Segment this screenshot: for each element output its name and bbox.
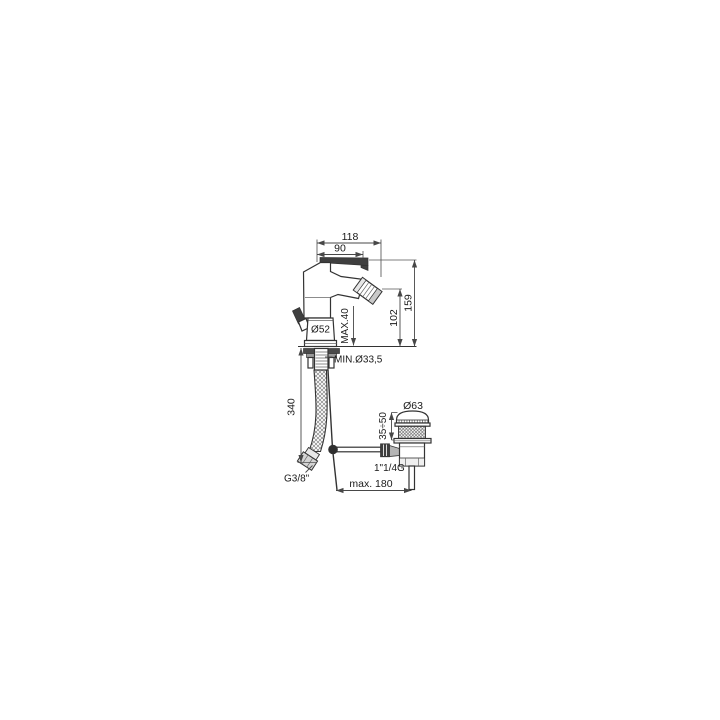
dim-1-14g-label: 1"1/4G bbox=[374, 463, 405, 474]
dim-max180-label: max. 180 bbox=[349, 478, 392, 490]
dim-handle-90: 90 bbox=[317, 243, 363, 259]
pop-up-rod bbox=[328, 370, 337, 490]
dim-118-label: 118 bbox=[342, 231, 359, 243]
faucet bbox=[293, 258, 382, 347]
dim-max-deck-40: MAX.40 bbox=[340, 306, 354, 346]
drain-threaded-section bbox=[399, 426, 426, 438]
handle-lip bbox=[361, 266, 368, 271]
hose-braid bbox=[309, 370, 327, 452]
technical-drawing-page: 118 90 159 102 MAX.40 Ø52 MIN.Ø33,5 bbox=[0, 0, 720, 720]
dim-o63-label: Ø63 bbox=[403, 400, 423, 412]
dim-max-reach-180: max. 180 bbox=[336, 478, 412, 491]
drain-cap-band bbox=[395, 423, 430, 426]
dim-waste-thread: 1"1/4G bbox=[374, 463, 405, 474]
dim-max40-label: MAX.40 bbox=[340, 308, 351, 344]
horizontal-rod bbox=[337, 447, 381, 452]
dim-min-hole-label: MIN.Ø33,5 bbox=[334, 355, 383, 366]
dim-340-label: 340 bbox=[286, 398, 298, 416]
dim-159-label: 159 bbox=[403, 294, 415, 312]
dim-90-label: 90 bbox=[334, 243, 346, 255]
dim-35-50-label: 35÷50 bbox=[378, 412, 389, 440]
rod-coupling bbox=[381, 444, 390, 457]
dim-102-label: 102 bbox=[388, 309, 400, 327]
dim-cap-diameter-63: Ø63 bbox=[403, 400, 423, 412]
dim-total-height-159: 159 bbox=[369, 260, 417, 347]
dim-base-diameter-52: Ø52 bbox=[311, 325, 330, 336]
drain-assembly bbox=[394, 411, 431, 490]
drain-tailpipe bbox=[409, 466, 415, 490]
dim-o52-label: Ø52 bbox=[311, 325, 330, 336]
flex-hose bbox=[297, 370, 327, 470]
bidet-mixer-technical-drawing: 118 90 159 102 MAX.40 Ø52 MIN.Ø33,5 bbox=[0, 0, 720, 720]
dim-min-hole-33-5: MIN.Ø33,5 bbox=[325, 355, 383, 366]
mounting-stud-left bbox=[308, 358, 313, 369]
dim-spout-height-102: 102 bbox=[382, 289, 402, 347]
pivot-joint bbox=[329, 445, 338, 454]
rod-cone bbox=[390, 446, 400, 457]
dim-g38-label: G3/8" bbox=[284, 474, 310, 485]
